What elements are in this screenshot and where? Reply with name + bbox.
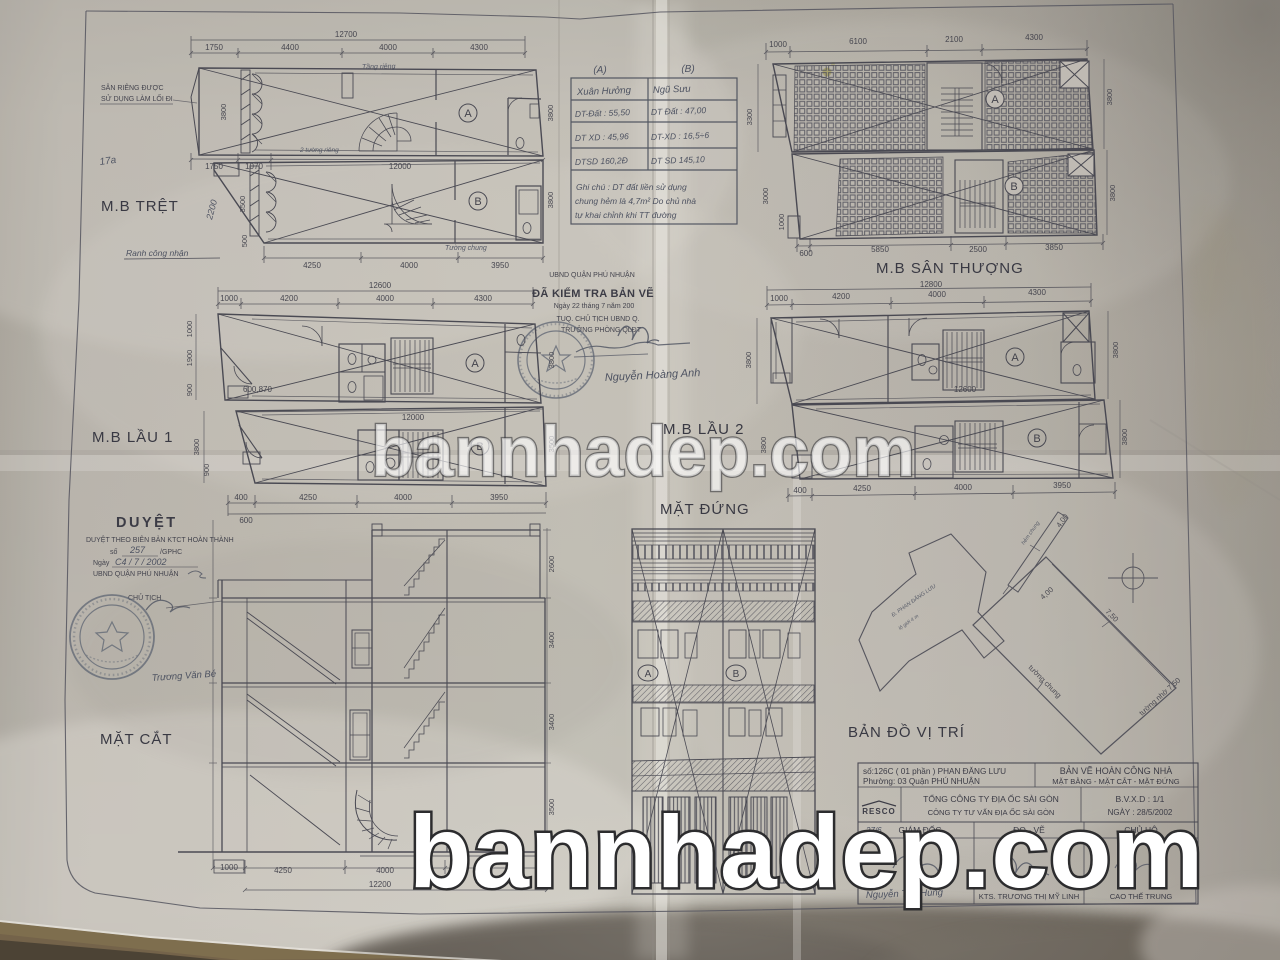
- svg-text:3800: 3800: [1111, 342, 1120, 359]
- svg-text:C4 / 7 / 2002: C4 / 7 / 2002: [115, 557, 167, 567]
- svg-text:M.B LẦU 1: M.B LẦU 1: [92, 429, 174, 446]
- svg-text:Ngũ Sưu: Ngũ Sưu: [653, 84, 692, 96]
- svg-text:500: 500: [240, 235, 249, 248]
- svg-text:ĐÃ KIỂM TRA BẢN VẼ: ĐÃ KIỂM TRA BẢN VẼ: [532, 287, 654, 300]
- svg-text:4200: 4200: [280, 294, 298, 303]
- svg-text:1000: 1000: [770, 294, 788, 303]
- svg-text:4250: 4250: [274, 866, 292, 875]
- svg-text:12000: 12000: [389, 162, 412, 171]
- svg-text:3400: 3400: [547, 632, 556, 649]
- svg-text:A: A: [1011, 352, 1019, 364]
- svg-text:(B): (B): [681, 64, 694, 75]
- svg-text:4300: 4300: [1025, 33, 1043, 42]
- svg-text:12700: 12700: [335, 30, 358, 39]
- svg-text:MẶT ĐỨNG: MẶT ĐỨNG: [660, 501, 750, 518]
- svg-text:900: 900: [185, 384, 194, 397]
- svg-text:257: 257: [129, 545, 146, 555]
- svg-text:3800: 3800: [219, 104, 228, 121]
- svg-text:3400: 3400: [547, 714, 556, 731]
- svg-text:2600: 2600: [547, 556, 556, 573]
- svg-text:MẶT BẰNG - MẶT CẮT - MẶT ĐỨNG: MẶT BẰNG - MẶT CẮT - MẶT ĐỨNG: [1052, 777, 1180, 786]
- svg-text:4000: 4000: [400, 261, 418, 270]
- svg-text:Xuân Hưởng: Xuân Hưởng: [576, 85, 632, 98]
- svg-text:1750: 1750: [205, 43, 223, 52]
- svg-text:3800: 3800: [1108, 185, 1117, 202]
- svg-text:A: A: [991, 94, 999, 106]
- svg-text:số: số: [110, 547, 118, 556]
- svg-text:A: A: [464, 108, 472, 120]
- svg-text:6100: 6100: [849, 37, 867, 46]
- svg-text:3500: 3500: [238, 196, 247, 213]
- svg-text:4000: 4000: [376, 866, 394, 875]
- svg-text:số:126C ( 01 phần ) PHAN ĐĂNG: số:126C ( 01 phần ) PHAN ĐĂNG LƯU: [863, 766, 1006, 776]
- svg-text:1900: 1900: [185, 350, 194, 367]
- svg-text:12800: 12800: [920, 280, 943, 289]
- svg-text:Ghi chú : DT đất liền sử dụng: Ghi chú : DT đất liền sử dụng: [576, 182, 687, 192]
- svg-text:(A): (A): [593, 65, 606, 76]
- svg-text:3800: 3800: [192, 439, 201, 456]
- svg-text:1000: 1000: [777, 214, 786, 231]
- svg-text:4000: 4000: [928, 290, 946, 299]
- svg-text:DUYỆT: DUYỆT: [116, 513, 178, 531]
- svg-text:A: A: [645, 669, 652, 680]
- svg-text:M.B SÂN THƯỢNG: M.B SÂN THƯỢNG: [876, 260, 1024, 277]
- svg-text:3800: 3800: [1105, 89, 1114, 106]
- svg-text:4300: 4300: [470, 43, 488, 52]
- svg-text:3950: 3950: [490, 493, 508, 502]
- svg-text:4000: 4000: [394, 493, 412, 502]
- svg-text:2500: 2500: [969, 245, 987, 254]
- svg-text:900: 900: [202, 464, 211, 477]
- svg-text:UBND QUẬN PHÚ NHUẬN: UBND QUẬN PHÚ NHUẬN: [93, 569, 179, 578]
- svg-text:5850: 5850: [871, 245, 889, 254]
- svg-text:4000: 4000: [954, 483, 972, 492]
- svg-text:3950: 3950: [491, 261, 509, 270]
- svg-text:SÂN RIÊNG ĐƯỢC: SÂN RIÊNG ĐƯỢC: [101, 83, 164, 92]
- svg-text:DT Đất : 47,00: DT Đất : 47,00: [651, 105, 707, 117]
- svg-text:bannhadep.com: bannhadep.com: [371, 413, 915, 492]
- svg-text:3300: 3300: [745, 109, 754, 126]
- svg-text:B: B: [1033, 433, 1040, 445]
- svg-text:Ngày 22 tháng 7 năm 200: Ngày 22 tháng 7 năm 200: [554, 303, 635, 310]
- svg-text:2 tường riêng: 2 tường riêng: [299, 147, 339, 154]
- svg-text:1000: 1000: [220, 294, 238, 303]
- svg-text:4000: 4000: [376, 294, 394, 303]
- svg-text:/GPHC: /GPHC: [160, 549, 182, 556]
- svg-text:4400: 4400: [281, 43, 299, 52]
- svg-text:4000: 4000: [379, 43, 397, 52]
- svg-text:DT XD : 45,96: DT XD : 45,96: [575, 131, 629, 143]
- svg-text:3800: 3800: [546, 105, 555, 122]
- svg-text:3800: 3800: [546, 192, 555, 209]
- svg-text:DT-Đất : 55,50: DT-Đất : 55,50: [575, 107, 631, 119]
- svg-text:12600: 12600: [954, 385, 977, 394]
- svg-text:3800: 3800: [1120, 429, 1129, 446]
- svg-text:B: B: [1010, 181, 1017, 193]
- svg-text:MẶT CẮT: MẶT CẮT: [100, 730, 173, 748]
- svg-text:3950: 3950: [1053, 481, 1071, 490]
- svg-text:600,870: 600,870: [243, 385, 272, 394]
- svg-text:3800: 3800: [547, 352, 556, 369]
- svg-text:4300: 4300: [1028, 288, 1046, 297]
- svg-text:chung hẻm là 4,7m² Do chủ nhà: chung hẻm là 4,7m² Do chủ nhà: [575, 196, 696, 206]
- svg-text:4200: 4200: [832, 292, 850, 301]
- svg-text:4300: 4300: [474, 294, 492, 303]
- svg-text:Tường chung: Tường chung: [445, 245, 487, 252]
- svg-text:B: B: [474, 196, 481, 208]
- svg-text:M.B TRỆT: M.B TRỆT: [101, 198, 179, 215]
- svg-text:tự khai chỉnh khi TT đường: tự khai chỉnh khi TT đường: [575, 210, 677, 220]
- svg-text:BẢN ĐỒ VỊ TRÍ: BẢN ĐỒ VỊ TRÍ: [848, 723, 965, 741]
- svg-text:600: 600: [239, 516, 253, 525]
- svg-text:bannhadep.com: bannhadep.com: [409, 795, 1204, 909]
- svg-text:1000: 1000: [769, 40, 787, 49]
- svg-text:2100: 2100: [945, 35, 963, 44]
- svg-text:A: A: [471, 358, 479, 370]
- svg-text:1000: 1000: [220, 863, 238, 872]
- svg-text:4250: 4250: [299, 493, 317, 502]
- svg-text:3000: 3000: [761, 188, 770, 205]
- svg-text:400: 400: [234, 493, 248, 502]
- svg-text:BẢN VẼ HOÀN CÔNG NHÀ: BẢN VẼ HOÀN CÔNG NHÀ: [1060, 765, 1173, 776]
- svg-text:DUYỆT THEO BIÊN BẢN KTCT HOÀN: DUYỆT THEO BIÊN BẢN KTCT HOÀN THÀNH: [86, 535, 234, 544]
- svg-text:DT-XD : 16,5÷6: DT-XD : 16,5÷6: [651, 130, 710, 142]
- svg-text:1000: 1000: [185, 321, 194, 338]
- svg-text:3850: 3850: [1045, 243, 1063, 252]
- svg-text:Ngày: Ngày: [93, 560, 110, 567]
- svg-text:4250: 4250: [303, 261, 321, 270]
- svg-text:DTSD 160,2Đ: DTSD 160,2Đ: [575, 155, 628, 167]
- svg-text:DT SD 145,10: DT SD 145,10: [651, 154, 705, 166]
- svg-text:12200: 12200: [369, 880, 392, 889]
- svg-text:B: B: [733, 669, 740, 680]
- svg-text:12600: 12600: [369, 281, 392, 290]
- svg-text:600: 600: [799, 249, 813, 258]
- svg-text:Phường: 03 Quận PHÚ NH: Phường: 03 Quận PHÚ NHUẬN: [863, 776, 980, 786]
- svg-text:UBND QUẬN PHÚ NHUẬN: UBND QUẬN PHÚ NHUẬN: [549, 270, 635, 279]
- svg-text:Ranh công nhận: Ranh công nhận: [126, 248, 189, 258]
- svg-text:3800: 3800: [744, 352, 753, 369]
- svg-text:TUQ. CHỦ TỊCH UBND Q.: TUQ. CHỦ TỊCH UBND Q.: [556, 314, 639, 323]
